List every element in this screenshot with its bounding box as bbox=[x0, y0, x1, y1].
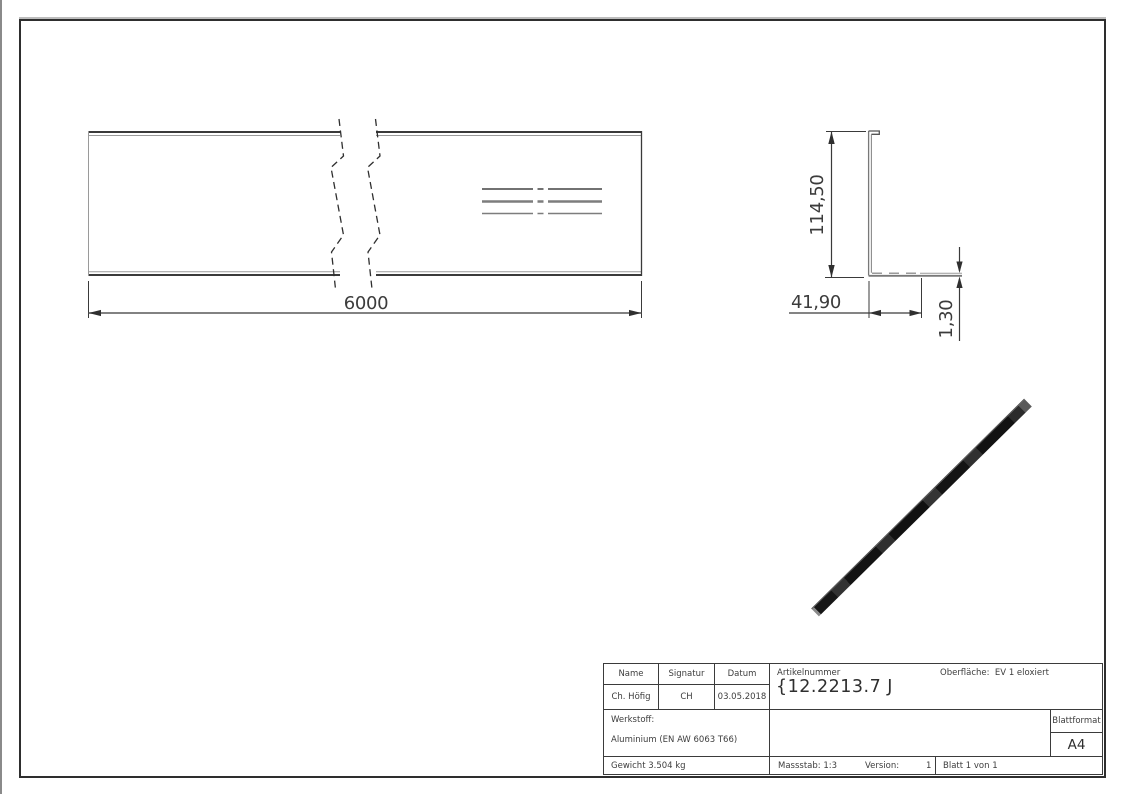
dim-text-width: 41,90 bbox=[791, 292, 841, 313]
dim-text-height: 114,50 bbox=[807, 174, 828, 235]
signatur-header: Signatur bbox=[659, 664, 715, 685]
arrowhead-down bbox=[828, 265, 834, 278]
werkstoff-value: Aluminium (EN AW 6063 T66) bbox=[611, 735, 737, 745]
werkstoff-label: Werkstoff: bbox=[611, 715, 654, 725]
dim-text-length: 6000 bbox=[344, 293, 389, 314]
name-header: Name bbox=[604, 664, 659, 685]
datum-value: 03.05.2018 bbox=[715, 685, 770, 710]
gewicht-cell: Gewicht 3.504 kg bbox=[604, 757, 770, 774]
front-view bbox=[88, 119, 642, 289]
artikelnummer-cell: Artikelnummer Oberfläche: EV 1 eloxiert … bbox=[770, 664, 1102, 710]
version-value: 1 bbox=[926, 761, 931, 771]
massstab-cell: Massstab: 1:3 Version: 1 bbox=[770, 757, 936, 774]
arrowhead-right bbox=[629, 310, 642, 316]
blattformat-label: Blattformat bbox=[1051, 710, 1102, 733]
dimension-length: 6000 bbox=[89, 281, 642, 318]
drawing-sheet: 6000 114,50 41,90 bbox=[0, 0, 1123, 794]
signatur-value: CH bbox=[659, 685, 715, 710]
datum-header: Datum bbox=[715, 664, 770, 685]
arrowhead-left bbox=[89, 310, 102, 316]
dim-text-thickness: 1,30 bbox=[936, 300, 957, 339]
artikelnummer-value: {12.2213.7 J bbox=[776, 677, 893, 697]
dimension-thickness: 1,30 bbox=[936, 247, 963, 341]
break-lines bbox=[331, 119, 380, 289]
arrowhead-up bbox=[828, 132, 834, 145]
massstab-text: Massstab: 1:3 bbox=[778, 761, 837, 771]
blatt-cell: Blatt 1 von 1 bbox=[936, 757, 1102, 774]
blattformat-value: A4 bbox=[1051, 733, 1102, 757]
center-lines bbox=[482, 189, 602, 214]
arrowhead-right bbox=[910, 310, 922, 316]
version-label: Version: bbox=[865, 761, 899, 771]
empty-cell bbox=[770, 710, 1051, 757]
dimension-width: 41,90 bbox=[789, 278, 922, 318]
dimension-height: 114,50 bbox=[807, 132, 866, 278]
title-block: Name Signatur Datum Ch. Höfig CH 03.05.2… bbox=[603, 663, 1103, 775]
profile-top-lip bbox=[869, 131, 880, 134]
section-view bbox=[869, 131, 962, 276]
werkstoff-cell: Werkstoff: Aluminium (EN AW 6063 T66) bbox=[604, 710, 770, 757]
arrowhead-up bbox=[956, 277, 962, 289]
arrowhead-left bbox=[869, 310, 881, 316]
oberflaeche-text: Oberfläche: EV 1 eloxiert bbox=[940, 668, 1049, 678]
name-value: Ch. Höfig bbox=[604, 685, 659, 710]
arrowhead-down bbox=[956, 262, 962, 274]
